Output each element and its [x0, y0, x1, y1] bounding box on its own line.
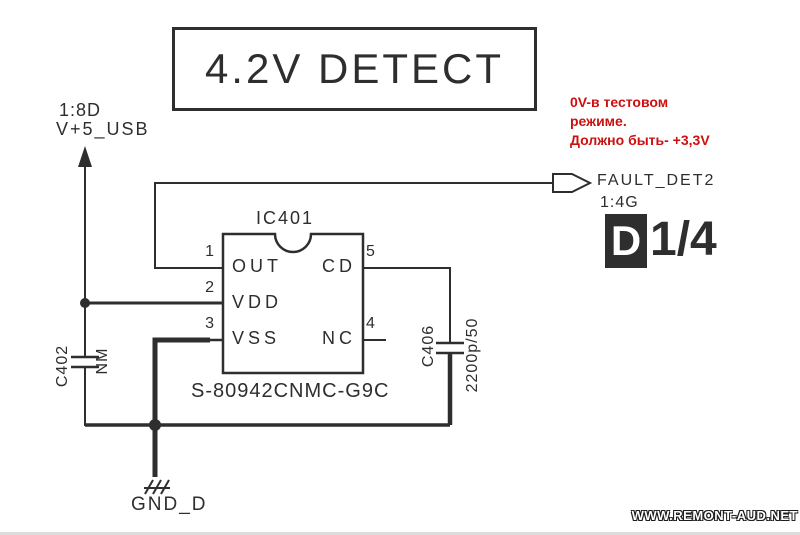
page-title: 4.2V DETECT: [205, 45, 504, 93]
ground-net-label: GND_D: [131, 494, 208, 516]
pin-label-nc: NC: [322, 328, 356, 349]
ground-symbol-icon: [144, 480, 170, 494]
pin-label-cd: CD: [322, 256, 356, 277]
power-net-label: V+5_USB: [56, 119, 150, 140]
pin-number-4: 4: [366, 315, 390, 333]
pin-label-vdd: VDD: [232, 292, 282, 313]
output-sheet-ref: 1:4G: [600, 194, 639, 212]
ic-part-number: S-80942CNMC-G9C: [191, 380, 389, 403]
c402-value-label: NM: [94, 348, 112, 375]
junction-dot-ground: [149, 419, 161, 431]
c406-ref-label: C406: [420, 325, 438, 367]
test-mode-note: 0V-в тестовом режиме. Должно быть- +3,3V: [570, 93, 710, 150]
pin-number-2: 2: [190, 279, 214, 297]
pin-number-5: 5: [366, 243, 390, 261]
c402-ref-label: C402: [54, 345, 72, 387]
sheet-letter: D: [611, 217, 641, 265]
pin-number-3: 3: [190, 315, 214, 333]
ic-designator: IC401: [256, 208, 314, 229]
c406-value-label: 2200p/50: [464, 318, 482, 393]
capacitor-c406-icon: [436, 343, 464, 353]
pin-number-1: 1: [190, 243, 214, 261]
power-sheet-ref: 1:8D: [59, 100, 101, 121]
pin-label-out: OUT: [232, 256, 282, 277]
output-net-label: FAULT_DET2: [597, 172, 715, 190]
schematic-page: 4.2V DETECT 1:8D V+5_USB 0V-в тестовом р…: [0, 0, 800, 535]
note-line-3: Должно быть- +3,3V: [570, 131, 710, 150]
offpage-flag-icon: [553, 174, 590, 192]
note-line-2: режиме.: [570, 112, 710, 131]
junction-dot-vdd: [80, 298, 90, 308]
title-box: 4.2V DETECT: [172, 27, 537, 111]
watermark: WWW.REMONT-AUD.NET: [632, 508, 798, 523]
pin-label-vss: VSS: [232, 328, 280, 349]
sheet-ratio: 1/4: [650, 212, 717, 267]
sheet-letter-box: D: [605, 214, 647, 268]
note-line-1: 0V-в тестовом: [570, 93, 710, 112]
